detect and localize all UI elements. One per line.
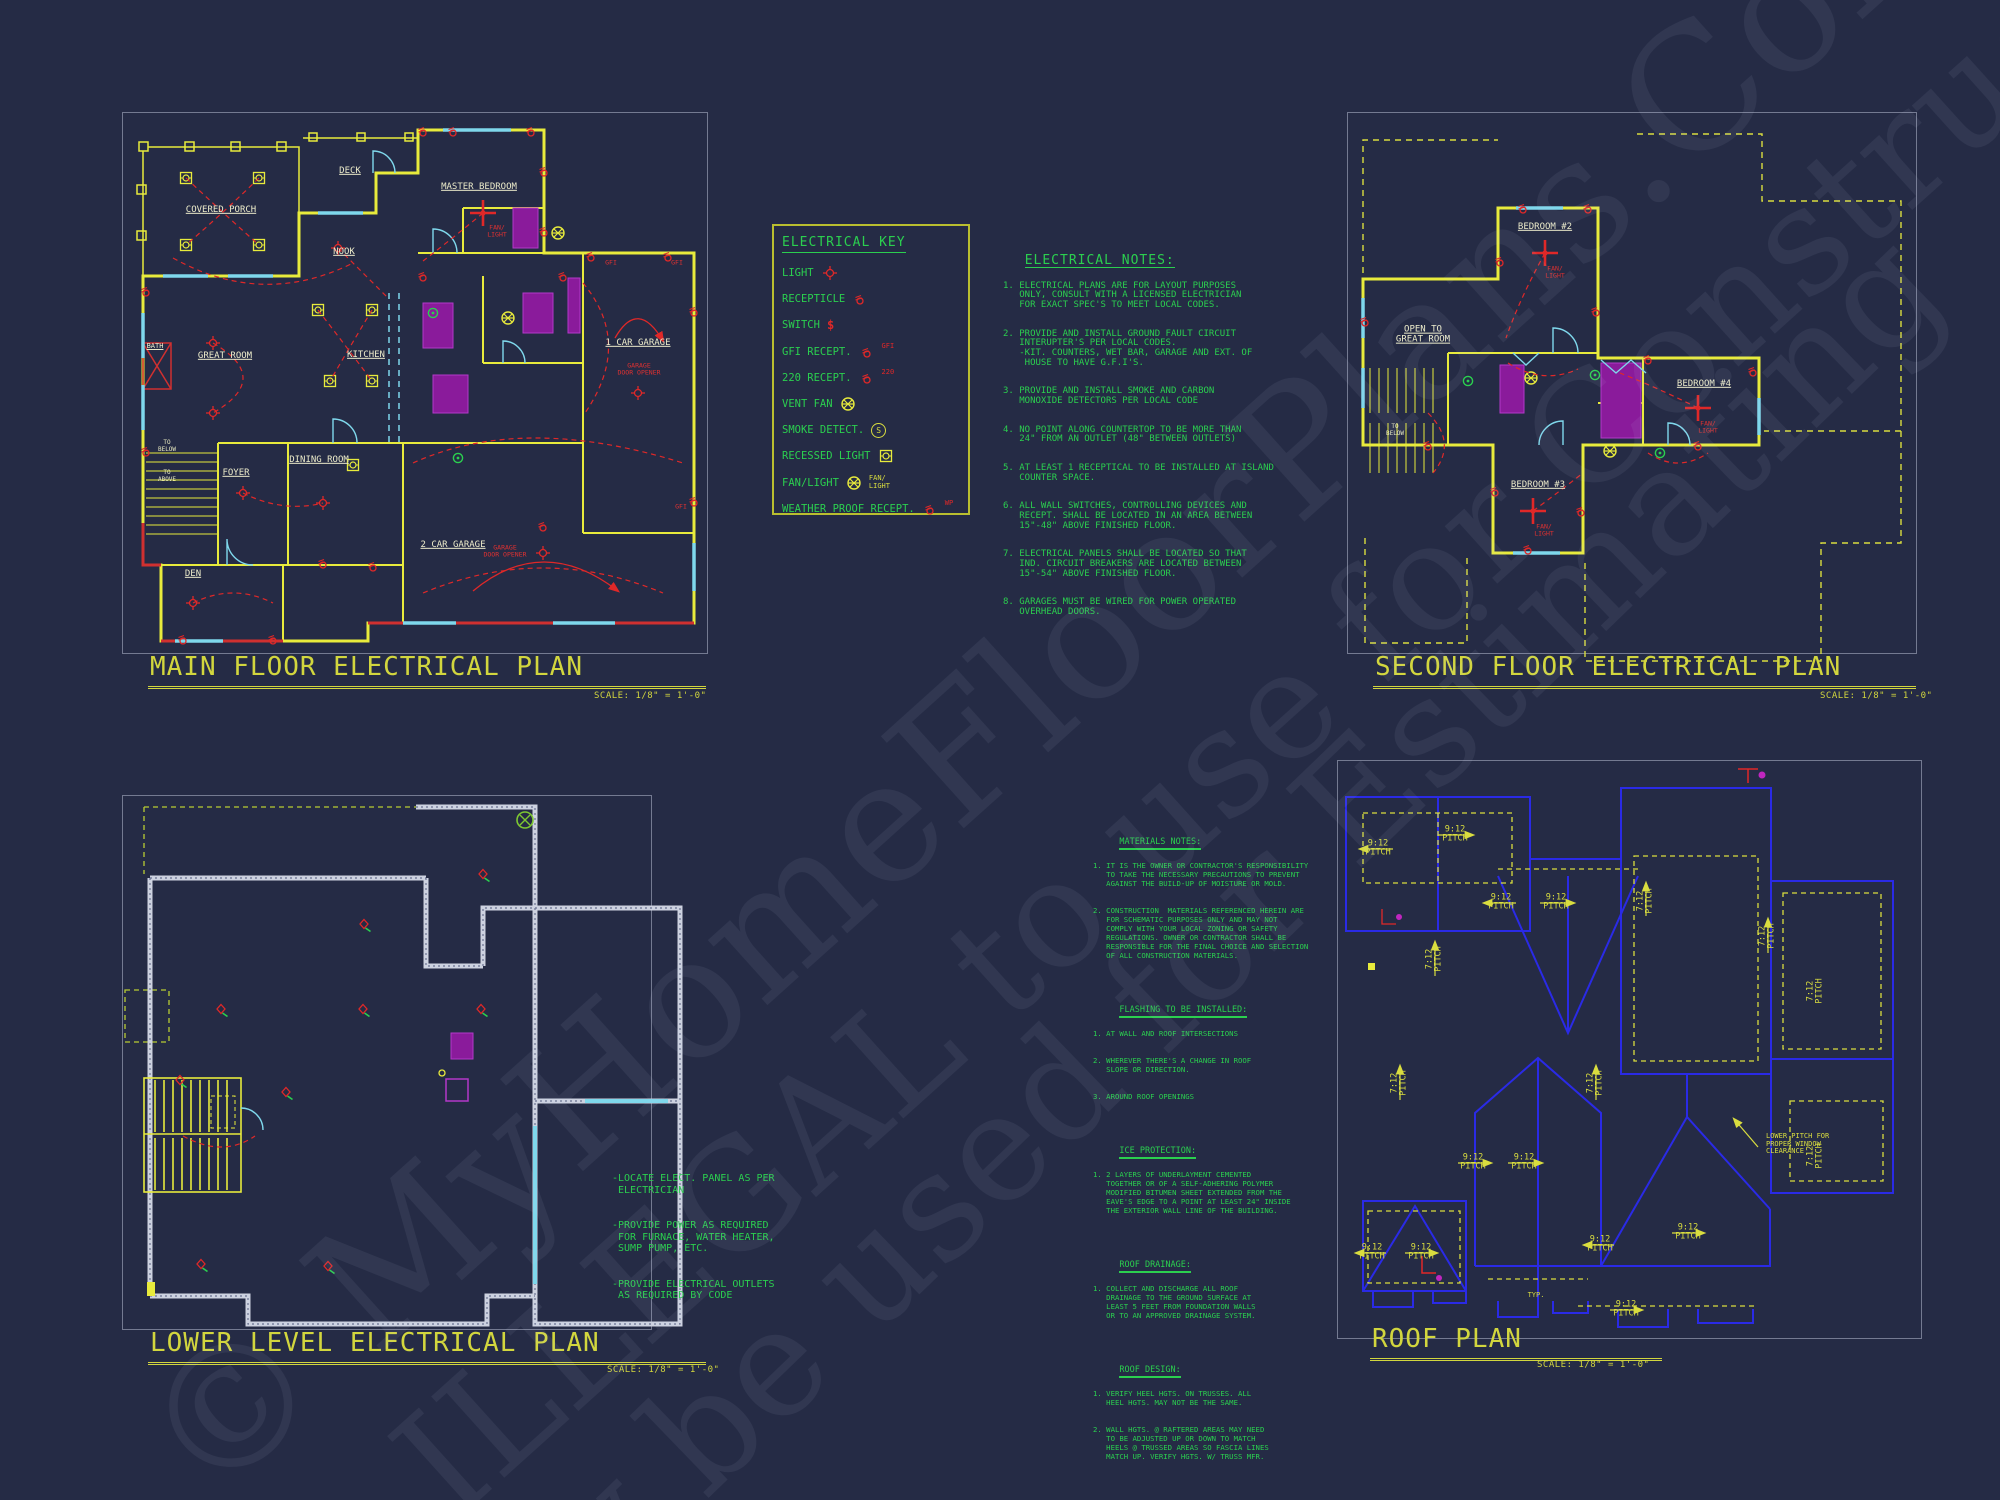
key-label-recessed: RECESSED LIGHT [782,450,871,462]
key-label-switch: SWITCH [782,319,820,331]
roof-design-section: ROOF DESIGN: 1. VERIFY HEEL HGTS. ON TRU… [1093,1356,1308,1479]
pitch-label: 9:12 PITCH [1365,840,1391,859]
chimney-marks [1368,769,1766,1281]
flashing-section: FLASHING TO BE INSTALLED: 1. AT WALL AND… [1093,996,1308,1119]
pitch-label: 7:12 PITCH [1426,946,1445,972]
key-label-220: 220 RECEPT. [782,372,852,384]
electrical-note: 7. ELECTRICAL PANELS SHALL BE LOCATED SO… [1003,550,1274,579]
lower-level-note: -PROVIDE ELECTRICAL OUTLETS AS REQUIRED … [612,1279,775,1302]
pitch-label: 7:12 PITCH [1807,978,1826,1004]
key-row-recessed: RECESSED LIGHT [782,443,960,469]
fan-light-label: FAN/ LIGHT [487,225,507,240]
main-floor-scale: SCALE: 1/8" = 1'-0" [594,691,706,701]
garage-door-opener-label: GARAGE DOOR OPENER [483,545,526,560]
materials-notes-section: MATERIALS NOTES: 1. IT IS THE OWNER OR C… [1093,828,1308,978]
smoke-detector [1463,376,1472,385]
main-floor-title: MAIN FLOOR ELECTRICAL PLAN [148,654,706,689]
ice-protection-title: ICE PROTECTION: [1119,1147,1196,1159]
to-above-label: TO ABOVE [158,470,176,484]
materials-note: 1. IT IS THE OWNER OR CONTRACTOR'S RESPO… [1093,861,1308,888]
second-floor-title: SECOND FLOOR ELECTRICAL PLAN [1373,654,1916,689]
lower-level-title: LOWER LEVEL ELECTRICAL PLAN [148,1330,706,1365]
gfi-label: GFI [605,259,617,266]
vent-fan [502,312,514,324]
deck-above-outline [125,807,416,1042]
key-row-220: 220 RECEPT. 220 [782,365,960,391]
second-floor-plan-drawing [1348,113,1916,653]
pitch-label: 9:12 PITCH [1511,1154,1537,1173]
vent-fan [1604,445,1616,457]
stairs [1370,368,1433,473]
roof-plan-title: ROOF PLAN [1370,1326,1662,1361]
switch-symbol-icon: $ [827,318,834,332]
second-floor-scale: SCALE: 1/8" = 1'-0" [1820,691,1932,701]
smoke-detector [453,453,462,462]
gfi-label: GFI [671,259,683,266]
electrical-key-title: ELECTRICAL KEY [782,235,906,253]
electrical-note: 6. ALL WALL SWITCHES, CONTROLLING DEVICE… [1003,502,1274,531]
pitch-label: 9:12 PITCH [1460,1154,1486,1173]
flashing-note: 1. AT WALL AND ROOF INTERSECTIONS [1093,1029,1308,1038]
gfi-superscript: GFI [882,342,895,350]
column-lines [389,293,399,443]
roof-drainage-note: 1. COLLECT AND DISCHARGE ALL ROOF DRAINA… [1093,1284,1308,1320]
recessed-lights [181,173,378,471]
room-label-bedroom4: BEDROOM #4 [1677,379,1731,389]
roof-plan-panel: 9:12 PITCH 9:12 PITCH 9:12 PITCH 9:12 PI… [1337,760,1922,1339]
wp-symbol-icon [922,501,938,517]
ice-protection-section: ICE PROTECTION: 1. 2 LAYERS OF UNDERLAYM… [1093,1137,1308,1233]
main-floor-plan-panel: DECK COVERED PORCH MASTER BEDROOM NOOK G… [122,112,708,654]
electrical-note: 4. NO POINT ALONG COUNTERTOP TO BE MORE … [1003,426,1274,445]
fan-light-symbol-icon [846,475,862,491]
electrical-key: ELECTRICAL KEY LIGHT RECEPTICLE SWITCH $… [772,224,970,515]
pitch-label: 7:12 PITCH [1391,1070,1410,1096]
typ-label: TYP. [1528,1292,1545,1300]
pitch-label: 7:12 PITCH [1759,923,1778,949]
pitch-label: 9:12 PITCH [1359,1244,1385,1263]
room-label-foyer: FOYER [222,468,249,478]
key-row-switch: SWITCH $ [782,312,960,338]
lower-level-note: -LOCATE ELECT. PANEL AS PER ELECTRICIAN [612,1173,775,1196]
drawing-sheet: DECK COVERED PORCH MASTER BEDROOM NOOK G… [0,0,2000,1500]
220-symbol-icon [859,370,875,386]
light-symbol-icon [821,264,839,282]
pitch-label: 9:12 PITCH [1543,894,1569,913]
wiring-arc [183,1136,255,1147]
vent-fan [552,227,564,239]
vent-fan-symbol-icon [840,396,856,412]
key-label-light: LIGHT [782,267,814,279]
main-floor-plan-drawing [123,113,707,653]
220-superscript: 220 [882,368,895,376]
room-label-nook: NOOK [333,247,355,257]
smoke-detector [1655,448,1664,457]
lower-pitch-note: LOWER PITCH FOR PROPER WINDOW CLEARANCE [1766,1133,1829,1156]
closets [1500,363,1641,438]
electrical-note: 2. PROVIDE AND INSTALL GROUND FAULT CIRC… [1003,330,1274,368]
roof-design-note: 2. WALL HGTS. @ RAFTERED AREAS MAY NEED … [1093,1425,1308,1461]
room-label-den: DEN [185,569,201,579]
key-row-light: LIGHT [782,260,960,286]
key-row-wp: WEATHER PROOF RECEPT. WP [782,496,960,522]
recessed-symbol-icon [878,448,894,464]
room-label-master-bedroom: MASTER BEDROOM [441,182,517,192]
wiring-arcs [1428,253,1708,511]
room-label-deck: DECK [339,166,361,176]
roof-drainage-title: ROOF DRAINAGE: [1119,1261,1191,1273]
lower-level-notes: -LOCATE ELECT. PANEL AS PER ELECTRICIAN … [612,1150,775,1326]
smoke-symbol-icon: S [871,423,886,438]
flashing-note: 3. AROUND ROOF OPENINGS [1093,1092,1308,1101]
pitch-label: 7:12 PITCH [1587,1070,1606,1096]
roof-materials-notes: MATERIALS NOTES: 1. IT IS THE OWNER OR C… [1093,810,1308,1500]
to-below-label: TO BELOW [158,440,176,454]
key-row-fan-light: FAN/LIGHT FAN/ LIGHT [782,470,960,496]
pitch-label: 9:12 PITCH [1488,894,1514,913]
roof-drainage-section: ROOF DRAINAGE: 1. COLLECT AND DISCHARGE … [1093,1251,1308,1338]
lower-level-scale: SCALE: 1/8" = 1'-0" [607,1365,719,1375]
room-label-open-to-great-room: OPEN TO GREAT ROOM [1396,325,1450,346]
vent-fan [517,812,533,828]
ice-protection-note: 1. 2 LAYERS OF UNDERLAYMENT CEMENTED TOG… [1093,1170,1308,1215]
electrical-note: 1. ELECTRICAL PLANS ARE FOR LAYOUT PURPO… [1003,282,1274,311]
garage-door-opener-label: GARAGE DOOR OPENER [617,363,660,378]
key-row-vent-fan: VENT FAN [782,391,960,417]
electrical-note: 8. GARAGES MUST BE WIRED FOR POWER OPERA… [1003,598,1274,617]
room-label-great-room: GREAT ROOM [198,351,252,361]
pitch-label: 7:12 PITCH [1637,888,1656,914]
room-label-kitchen: KITCHEN [347,350,385,360]
to-below-label: TO BELOW [1386,424,1404,438]
materials-notes-title: MATERIALS NOTES: [1119,838,1201,850]
foundation-walls [150,807,680,1324]
roof-plan-scale: SCALE: 1/8" = 1'-0" [1537,1360,1649,1370]
room-label-1-car-garage: 1 CAR GARAGE [605,338,670,348]
pitch-label: 9:12 PITCH [1442,826,1468,845]
roof-design-note: 1. VERIFY HEEL HGTS. ON TRUSSES. ALL HEE… [1093,1389,1308,1407]
room-label-bedroom2: BEDROOM #2 [1518,222,1572,232]
room-label-covered-porch: COVERED PORCH [186,205,256,215]
electrical-note: 3. PROVIDE AND INSTALL SMOKE AND CARBON … [1003,387,1274,406]
fan-light-label: FAN/ LIGHT [1698,421,1718,436]
pitch-label: 9:12 PITCH [1408,1244,1434,1263]
gfi-label: GFI [675,503,687,510]
pitch-label: 9:12 PITCH [1587,1236,1613,1255]
mechanical-equipment [439,1033,473,1101]
lower-level-plan-panel [122,795,652,1330]
room-label-dining-room: DINING ROOM [289,455,349,465]
stair-door-swing [241,1108,263,1130]
second-floor-plan-panel: BEDROOM #2 OPEN TO GREAT ROOM BEDROOM #4… [1347,112,1917,654]
fan-light-note: FAN/ LIGHT [869,475,890,490]
receptacle-symbol-icon [852,291,868,307]
wp-superscript: WP [945,499,953,507]
key-label-smoke: SMOKE DETECT. [782,424,864,436]
pitch-label: 9:12 PITCH [1613,1301,1639,1320]
smoke-detector [1590,370,1599,379]
stairs [146,453,218,534]
gfi-symbol-icon [859,344,875,360]
fan-light-label: FAN/ LIGHT [1545,266,1565,281]
basement-lights [176,870,490,1274]
roof-design-title: ROOF DESIGN: [1119,1366,1180,1378]
key-label-wp: WEATHER PROOF RECEPT. [782,503,915,515]
foundation-hatch [150,807,680,1324]
fan-light-label: FAN/ LIGHT [1534,524,1554,539]
key-row-recepticle: RECEPTICLE [782,286,960,312]
key-row-gfi: GFI RECEPT. GFI [782,339,960,365]
wall-accent [147,1282,155,1296]
stairs [144,1078,241,1192]
room-label-bath: BATH [147,342,164,350]
electrical-notes-title: ELECTRICAL NOTES: [1025,256,1175,269]
interior-walls [161,208,694,641]
pitch-label: 9:12 PITCH [1675,1224,1701,1243]
key-label-recepticle: RECEPTICLE [782,293,845,305]
room-label-bedroom3: BEDROOM #3 [1511,480,1565,490]
key-label-gfi: GFI RECEPT. [782,346,852,358]
key-label-fan-light: FAN/LIGHT [782,477,839,489]
key-label-vent-fan: VENT FAN [782,398,833,410]
flashing-title: FLASHING TO BE INSTALLED: [1119,1006,1247,1018]
materials-note: 2. CONSTRUCTION MATERIALS REFERENCED HER… [1093,906,1308,960]
flashing-note: 2. WHEREVER THERE'S A CHANGE IN ROOF SLO… [1093,1056,1308,1074]
lower-level-note: -PROVIDE POWER AS REQUIRED FOR FURNACE, … [612,1220,775,1255]
electrical-notes: ELECTRICAL NOTES: 1. ELECTRICAL PLANS AR… [1003,246,1274,637]
key-row-smoke: SMOKE DETECT. S [782,417,960,443]
electrical-note: 5. AT LEAST 1 RECEPTICAL TO BE INSTALLED… [1003,464,1274,483]
room-label-2-car-garage: 2 CAR GARAGE [420,540,485,550]
